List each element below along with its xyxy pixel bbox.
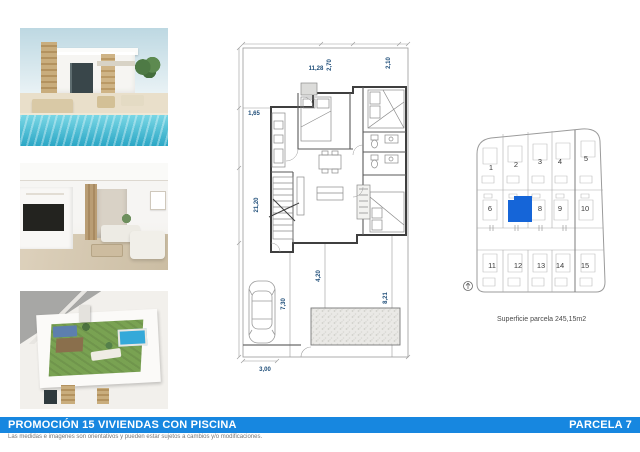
svg-text:12: 12 bbox=[514, 261, 522, 270]
stone-clad-pillar bbox=[61, 385, 74, 404]
sofa-corner bbox=[130, 231, 166, 259]
svg-text:6: 6 bbox=[488, 204, 492, 213]
living-dining bbox=[297, 151, 343, 215]
roof-sofa bbox=[52, 326, 76, 338]
svg-text:15: 15 bbox=[581, 261, 589, 270]
bedroom-1 bbox=[301, 83, 331, 141]
pool-ripples bbox=[20, 114, 168, 146]
flyer-page: 11,28 2,70 2,10 1,65 21,20 7,30 4,20 8,2… bbox=[0, 0, 640, 452]
photo-roof-terrace bbox=[20, 291, 168, 409]
dim-left-height: 21,20 bbox=[254, 197, 260, 213]
svg-text:1: 1 bbox=[489, 163, 493, 172]
roof-plant-2 bbox=[103, 341, 115, 350]
photo-villa-exterior-pool bbox=[20, 28, 168, 146]
fireplace-tv bbox=[23, 204, 64, 232]
outdoor-chair bbox=[97, 96, 115, 108]
svg-text:3: 3 bbox=[538, 157, 542, 166]
interior-walls bbox=[271, 87, 406, 243]
svg-text:8: 8 bbox=[538, 204, 542, 213]
roof-pool bbox=[117, 328, 147, 346]
svg-text:14: 14 bbox=[556, 261, 564, 270]
svg-text:10: 10 bbox=[581, 204, 589, 213]
photo-living-room bbox=[20, 163, 168, 270]
wall-art bbox=[150, 191, 165, 210]
dim-top-right: 2,10 bbox=[386, 57, 392, 69]
outdoor-lounge bbox=[121, 95, 145, 106]
bathroom-1 bbox=[371, 135, 398, 148]
svg-text:11: 11 bbox=[488, 261, 496, 270]
site-plan-drawing: 1 2 3 4 5 6 8 9 10 11 12 13 14 15 bbox=[460, 122, 615, 307]
shelf bbox=[26, 193, 64, 195]
dim-bottom-width: 3,00 bbox=[259, 367, 271, 373]
parcel-label: PARCELA 7 bbox=[569, 419, 632, 431]
promotion-title: PROMOCIÓN 15 VIVIENDAS CON PISCINA bbox=[8, 419, 237, 431]
svg-text:13: 13 bbox=[537, 261, 545, 270]
ceiling bbox=[20, 163, 168, 181]
svg-text:5: 5 bbox=[584, 154, 588, 163]
glass-door bbox=[70, 63, 92, 96]
dim-left-upper: 1,65 bbox=[248, 111, 260, 117]
plant bbox=[121, 214, 133, 227]
svg-text:2: 2 bbox=[514, 160, 518, 169]
roof-deck bbox=[55, 337, 82, 353]
garden-pool bbox=[311, 308, 400, 345]
dim-drive-depth: 7,30 bbox=[281, 298, 287, 310]
svg-text:4: 4 bbox=[558, 157, 562, 166]
bedroom-3 bbox=[357, 185, 404, 232]
wood-accent-wall bbox=[85, 184, 97, 240]
parcel-area-caption: Superficie parcela 245,15m2 bbox=[497, 316, 586, 323]
dim-yard-center: 4,20 bbox=[316, 270, 322, 282]
villa-facade bbox=[53, 52, 136, 97]
bathroom-2 bbox=[371, 155, 398, 168]
roof-plant bbox=[79, 322, 92, 333]
chimney bbox=[79, 305, 89, 322]
svg-text:9: 9 bbox=[558, 204, 562, 213]
dim-top-inner: 2,70 bbox=[327, 59, 333, 71]
yard-gate bbox=[243, 345, 311, 357]
pool-edge bbox=[20, 113, 168, 115]
stone-pillar-left bbox=[41, 42, 57, 99]
car-outline bbox=[249, 281, 275, 343]
coffee-table bbox=[91, 244, 123, 257]
title-banner: PROMOCIÓN 15 VIVIENDAS CON PISCINA PARCE… bbox=[0, 417, 640, 433]
facade-window bbox=[44, 390, 57, 404]
stone-clad-pillar-2 bbox=[97, 388, 109, 405]
dim-yard-right: 8,21 bbox=[383, 292, 389, 304]
palm-tree bbox=[130, 56, 163, 77]
stairs bbox=[269, 177, 299, 239]
disclaimer-text: Las medidas e imagenes son orientativos … bbox=[8, 434, 262, 440]
house-walls bbox=[271, 87, 406, 252]
highlighted-plot-7 bbox=[508, 196, 532, 222]
kitchen bbox=[272, 113, 285, 167]
outdoor-sofa bbox=[32, 99, 73, 113]
floor-plan-drawing: 11,28 2,70 2,10 1,65 21,20 7,30 4,20 8,2… bbox=[213, 27, 437, 417]
compass-icon bbox=[464, 282, 473, 291]
stone-pillar-right bbox=[101, 54, 114, 94]
bedroom-2 bbox=[368, 90, 404, 128]
dim-top-width: 11,28 bbox=[309, 66, 324, 72]
